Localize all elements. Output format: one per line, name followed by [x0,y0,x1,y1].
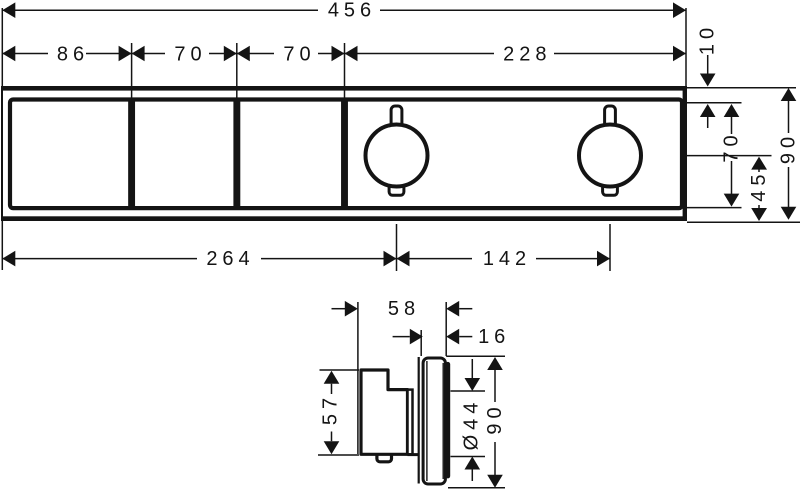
svg-text:86: 86 [57,44,89,66]
svg-text:90: 90 [484,402,506,434]
svg-text:58: 58 [388,298,420,320]
svg-text:45: 45 [748,169,770,201]
svg-text:70: 70 [283,44,315,66]
svg-text:142: 142 [483,248,531,270]
svg-text:70: 70 [721,130,743,162]
svg-text:57: 57 [320,393,342,425]
svg-text:16: 16 [478,326,510,348]
svg-text:264: 264 [206,248,254,270]
svg-text:456: 456 [328,0,376,22]
svg-text:90: 90 [778,132,800,164]
svg-text:10: 10 [697,23,719,55]
svg-text:228: 228 [503,44,551,66]
svg-text:Ø44: Ø44 [461,398,483,451]
svg-text:70: 70 [174,44,206,66]
